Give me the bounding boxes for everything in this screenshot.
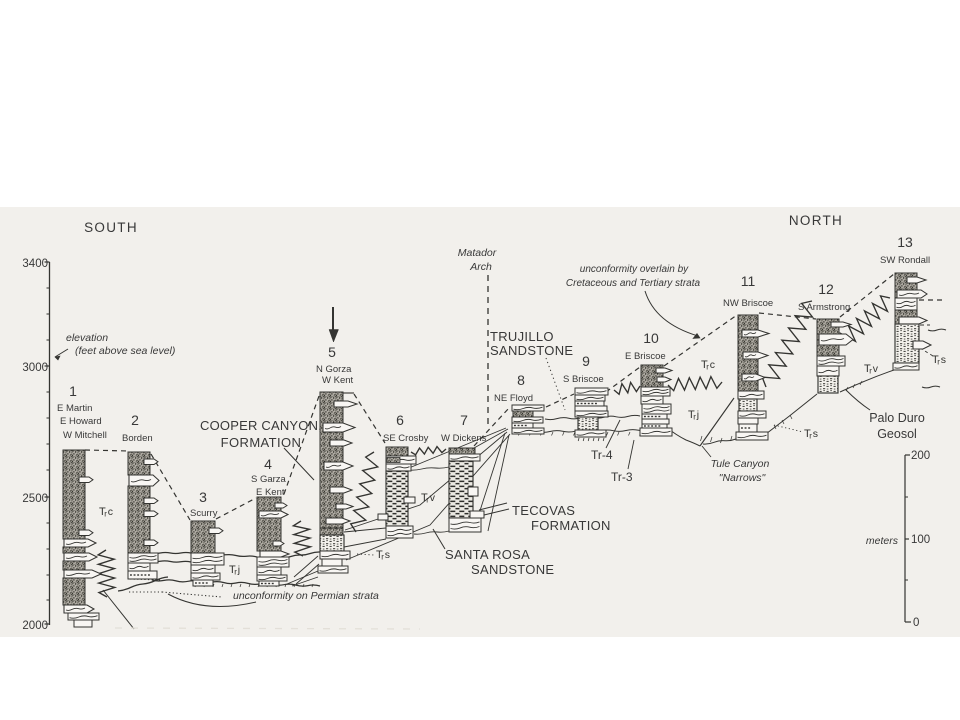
svg-text:SOUTH: SOUTH xyxy=(84,220,138,235)
svg-text:COOPER CANYON,: COOPER CANYON, xyxy=(200,418,322,433)
svg-text:r: r xyxy=(706,363,709,372)
svg-text:SANDSTONE: SANDSTONE xyxy=(490,343,573,358)
svg-text:FORMATION: FORMATION xyxy=(221,435,302,450)
svg-text:11: 11 xyxy=(741,273,756,289)
svg-text:200: 200 xyxy=(911,450,930,462)
svg-text:TECOVAS: TECOVAS xyxy=(512,503,575,518)
svg-text:c: c xyxy=(108,506,113,518)
svg-text:r: r xyxy=(693,413,696,422)
svg-text:TRUJILLO: TRUJILLO xyxy=(490,329,554,344)
svg-text:Cretaceous and Tertiary strata: Cretaceous and Tertiary strata xyxy=(566,278,701,289)
svg-text:W Kent: W Kent xyxy=(322,375,354,386)
svg-text:N Gorza: N Gorza xyxy=(316,364,352,375)
svg-text:r: r xyxy=(937,358,940,367)
svg-text:E Howard: E Howard xyxy=(60,416,102,427)
svg-text:W Mitchell: W Mitchell xyxy=(63,430,107,441)
svg-text:3000: 3000 xyxy=(22,362,48,374)
svg-text:j: j xyxy=(696,409,699,421)
svg-text:elevation: elevation xyxy=(66,332,108,344)
svg-text:r: r xyxy=(809,432,812,441)
svg-text:r: r xyxy=(381,553,384,562)
svg-text:E Briscoe: E Briscoe xyxy=(625,351,666,362)
svg-text:unconformity overlain by: unconformity overlain by xyxy=(580,264,689,275)
svg-text:j: j xyxy=(237,564,240,576)
svg-text:3400: 3400 xyxy=(22,258,48,270)
svg-text:Tule Canyon: Tule Canyon xyxy=(711,458,770,470)
svg-text:SANTA ROSA: SANTA ROSA xyxy=(445,547,530,562)
svg-text:6: 6 xyxy=(396,412,404,428)
svg-text:(feet above sea level): (feet above sea level) xyxy=(75,345,175,357)
svg-text:s: s xyxy=(813,428,818,440)
svg-text:12: 12 xyxy=(818,281,834,297)
svg-text:1: 1 xyxy=(69,383,77,399)
svg-text:r: r xyxy=(104,510,107,519)
svg-text:Scurry: Scurry xyxy=(190,508,218,519)
svg-text:S Garza: S Garza xyxy=(251,474,287,485)
svg-text:100: 100 xyxy=(911,534,930,546)
svg-text:Palo Duro: Palo Duro xyxy=(869,411,925,425)
svg-text:3: 3 xyxy=(199,489,207,505)
svg-text:Tr-4: Tr-4 xyxy=(591,448,613,462)
svg-text:meters: meters xyxy=(866,535,899,547)
svg-text:s: s xyxy=(941,354,946,366)
svg-text:Geosol: Geosol xyxy=(877,427,917,441)
svg-text:4: 4 xyxy=(264,456,272,472)
svg-text:S Armstrong: S Armstrong xyxy=(798,302,850,313)
svg-text:2: 2 xyxy=(131,412,139,428)
svg-text:2500: 2500 xyxy=(22,493,48,505)
svg-text:2000: 2000 xyxy=(22,620,48,632)
svg-text:Tr-3: Tr-3 xyxy=(611,470,633,484)
svg-text:r: r xyxy=(869,367,872,376)
svg-text:s: s xyxy=(385,549,390,561)
svg-text:13: 13 xyxy=(897,234,913,250)
svg-text:10: 10 xyxy=(643,330,659,346)
svg-text:NORTH: NORTH xyxy=(789,213,843,228)
svg-text:E Martin: E Martin xyxy=(57,403,92,414)
svg-text:"Narrows": "Narrows" xyxy=(719,472,767,484)
svg-text:NW Briscoe: NW Briscoe xyxy=(723,298,773,309)
svg-text:v: v xyxy=(873,363,879,375)
svg-text:Borden: Borden xyxy=(122,433,153,444)
svg-text:SW Rondall: SW Rondall xyxy=(880,255,930,266)
svg-text:FORMATION: FORMATION xyxy=(531,518,611,533)
svg-text:7: 7 xyxy=(460,412,468,428)
svg-text:S Briscoe: S Briscoe xyxy=(563,374,604,385)
svg-text:0: 0 xyxy=(913,617,919,629)
svg-text:NE Floyd: NE Floyd xyxy=(494,393,533,404)
svg-text:8: 8 xyxy=(517,372,525,388)
svg-text:5: 5 xyxy=(328,344,336,360)
svg-text:SANDSTONE: SANDSTONE xyxy=(471,562,554,577)
svg-text:c: c xyxy=(710,359,715,371)
svg-text:SE Crosby: SE Crosby xyxy=(383,433,429,444)
svg-text:E Kent: E Kent xyxy=(256,487,285,498)
svg-text:Matador: Matador xyxy=(458,247,497,259)
svg-text:Arch: Arch xyxy=(469,261,492,273)
svg-text:r: r xyxy=(234,568,237,577)
svg-text:9: 9 xyxy=(582,353,590,369)
svg-text:unconformity on Permian strata: unconformity on Permian strata xyxy=(233,590,379,602)
